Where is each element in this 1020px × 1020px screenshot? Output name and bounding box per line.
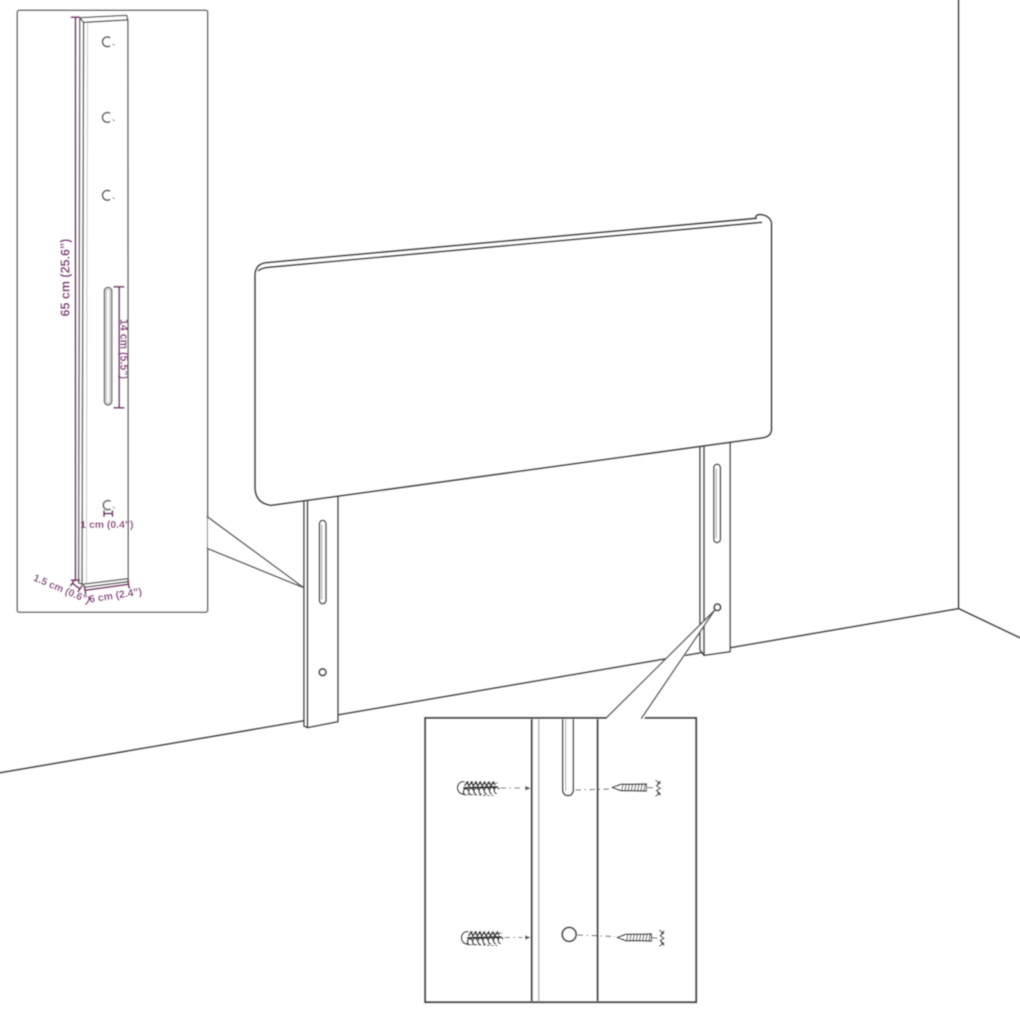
svg-text:1 cm (0.4”): 1 cm (0.4”) <box>80 520 133 531</box>
svg-text:65 cm (25.6”): 65 cm (25.6”) <box>58 239 72 317</box>
svg-text:14 cm (5.5”): 14 cm (5.5”) <box>118 319 130 379</box>
